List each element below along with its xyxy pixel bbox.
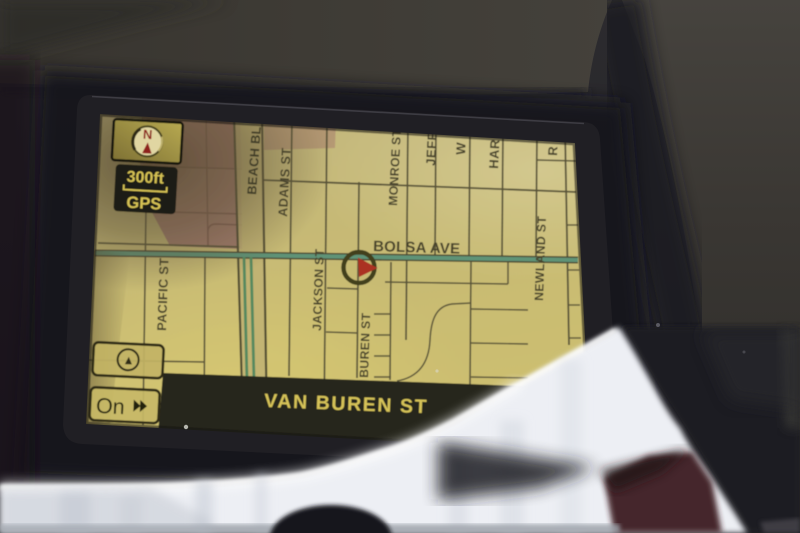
- svg-text:W: W: [453, 141, 469, 155]
- svg-text:300ft: 300ft: [126, 169, 165, 188]
- svg-text:R: R: [545, 145, 561, 156]
- svg-text:BOLSA AVE: BOLSA AVE: [373, 238, 461, 258]
- svg-text:NEWLAND ST: NEWLAND ST: [532, 216, 549, 302]
- svg-text:BUREN ST: BUREN ST: [357, 312, 373, 378]
- svg-text:On: On: [95, 394, 125, 419]
- svg-text:HAR: HAR: [486, 139, 503, 170]
- svg-text:JACKSON ST: JACKSON ST: [310, 248, 327, 331]
- svg-text:GPS: GPS: [126, 194, 162, 214]
- svg-text:PACIFIC ST: PACIFIC ST: [154, 257, 172, 331]
- svg-text:N: N: [143, 127, 153, 143]
